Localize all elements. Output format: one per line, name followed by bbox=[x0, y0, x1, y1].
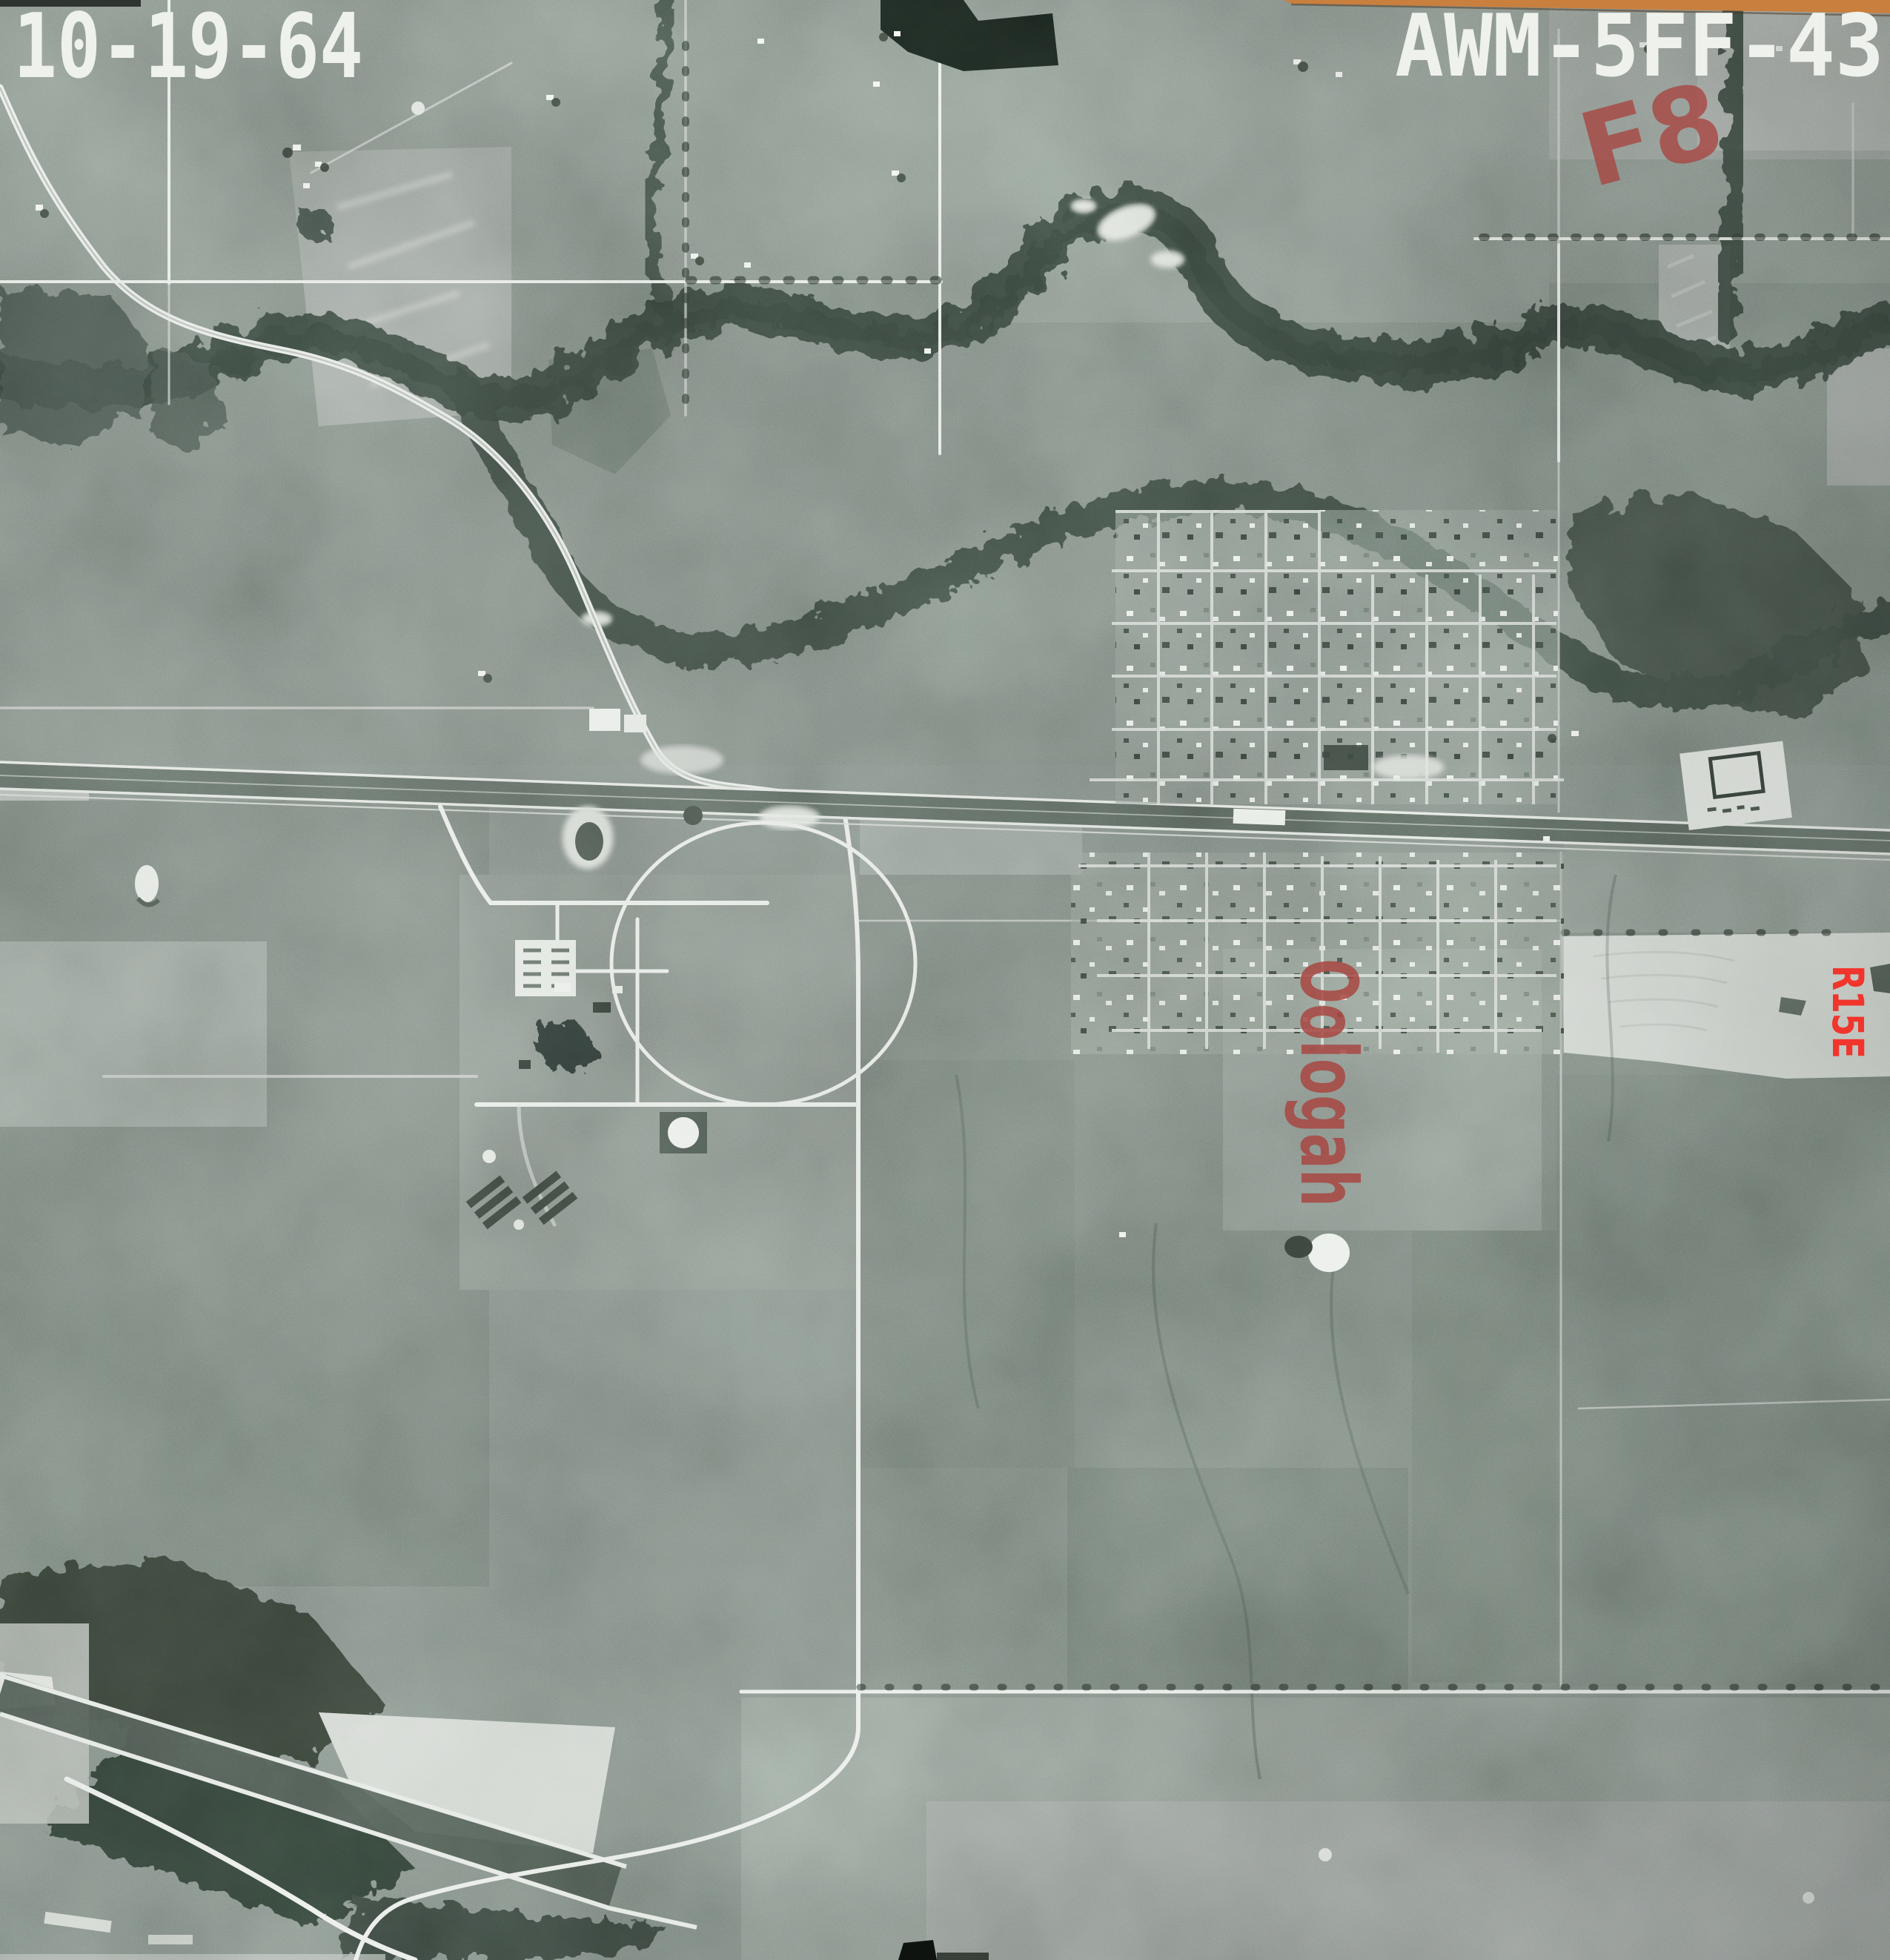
date-stamp: 10-19-64 bbox=[13, 0, 363, 99]
aerial-photo-sheet: 10-19-64 AWM-5FF-43 F8 Oologah R15E bbox=[0, 0, 1890, 1960]
red-label-r15e: R15E bbox=[1823, 965, 1873, 1059]
aerial-photograph: 10-19-64 AWM-5FF-43 F8 Oologah R15E bbox=[0, 0, 1890, 1960]
red-label-oologah: Oologah bbox=[1283, 959, 1373, 1207]
fiducial-mark bbox=[898, 1940, 937, 1960]
photo-tone-overlays bbox=[0, 0, 1890, 1960]
